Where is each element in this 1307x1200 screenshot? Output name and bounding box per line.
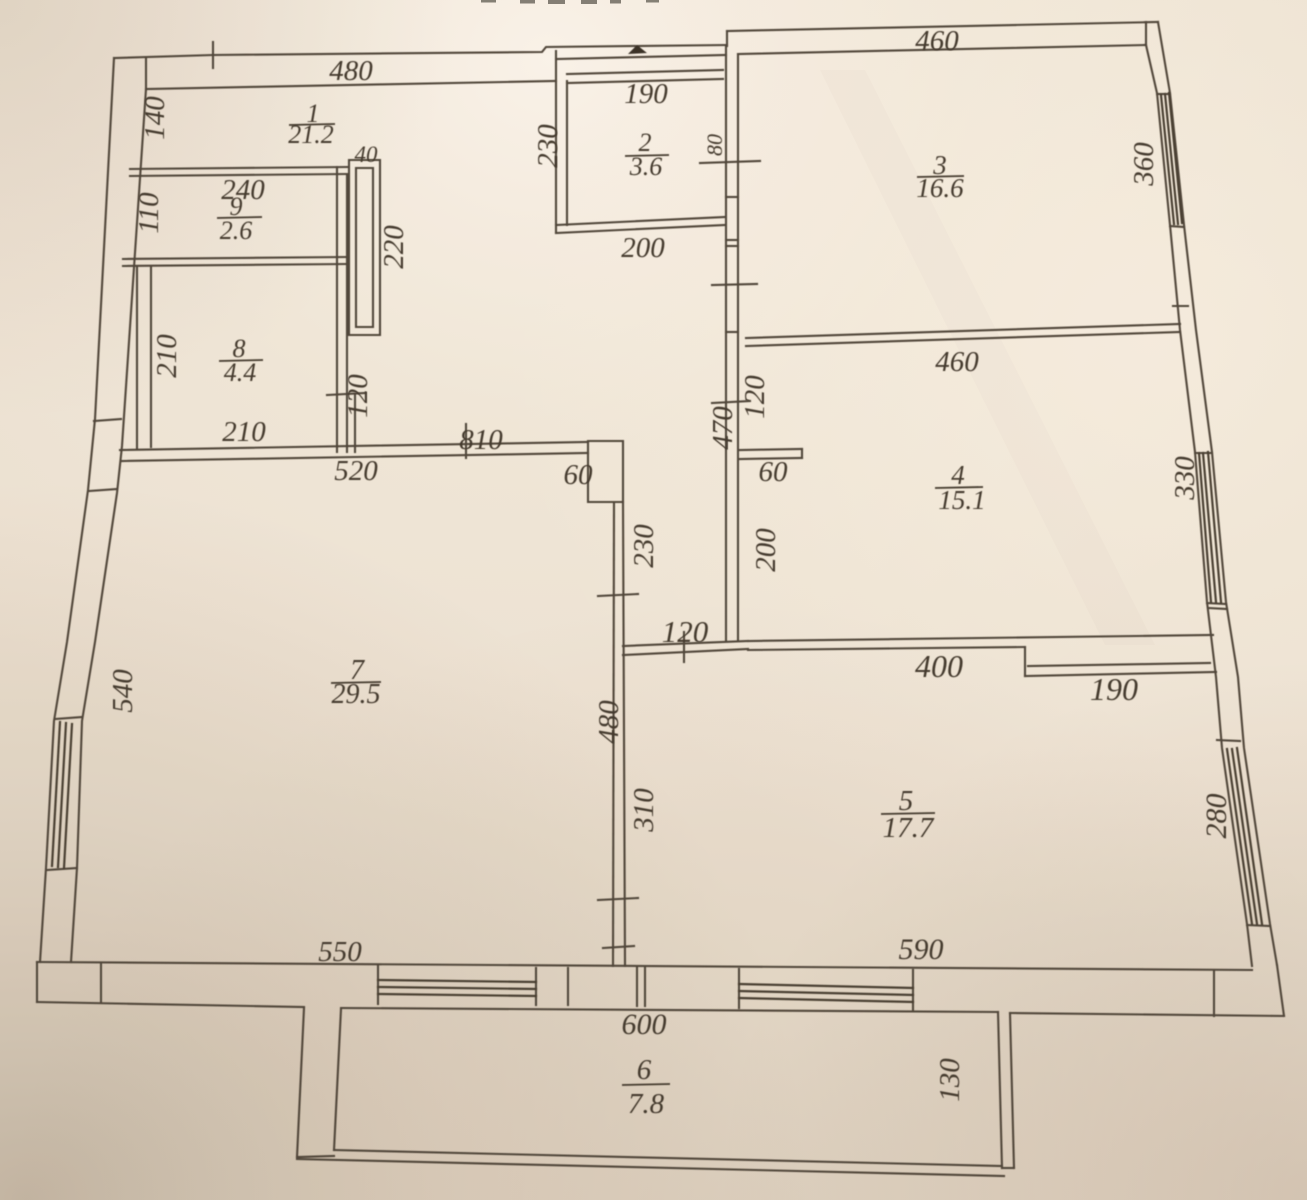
svg-text:460: 460 <box>935 346 979 378</box>
svg-text:60: 60 <box>564 459 594 491</box>
svg-text:6: 6 <box>637 1054 652 1086</box>
svg-text:200: 200 <box>750 528 782 572</box>
svg-text:480: 480 <box>593 700 625 744</box>
svg-text:15.1: 15.1 <box>938 485 985 515</box>
svg-text:80: 80 <box>702 134 727 156</box>
svg-text:280: 280 <box>1200 794 1233 839</box>
svg-text:230: 230 <box>628 524 660 568</box>
svg-text:310: 310 <box>628 788 660 833</box>
svg-text:480: 480 <box>329 55 373 87</box>
svg-text:7.8: 7.8 <box>628 1088 665 1120</box>
svg-text:2.6: 2.6 <box>220 216 253 245</box>
svg-text:200: 200 <box>621 232 665 264</box>
svg-text:21.2: 21.2 <box>288 120 334 149</box>
svg-text:210: 210 <box>151 334 183 378</box>
svg-text:120: 120 <box>342 374 374 418</box>
svg-text:210: 210 <box>222 416 266 448</box>
svg-text:520: 520 <box>334 455 378 487</box>
svg-text:330: 330 <box>1169 456 1201 501</box>
svg-text:60: 60 <box>759 456 789 488</box>
svg-text:29.5: 29.5 <box>332 679 381 710</box>
svg-text:190: 190 <box>624 78 668 110</box>
svg-text:140: 140 <box>139 96 171 140</box>
svg-text:120: 120 <box>739 375 771 419</box>
svg-text:360: 360 <box>1128 142 1160 187</box>
svg-text:4.4: 4.4 <box>224 358 257 387</box>
svg-text:590: 590 <box>899 933 944 966</box>
svg-text:110: 110 <box>133 192 165 234</box>
svg-text:120: 120 <box>662 614 709 649</box>
svg-text:600: 600 <box>622 1008 667 1041</box>
svg-text:540: 540 <box>107 669 139 713</box>
svg-text:130: 130 <box>934 1058 966 1102</box>
svg-text:220: 220 <box>378 225 410 269</box>
svg-text:460: 460 <box>915 25 959 57</box>
svg-text:550: 550 <box>318 936 362 968</box>
svg-text:810: 810 <box>459 424 503 456</box>
svg-text:470: 470 <box>707 406 739 450</box>
svg-text:230: 230 <box>532 124 564 168</box>
svg-text:3.6: 3.6 <box>629 152 663 181</box>
svg-text:190: 190 <box>1090 671 1138 707</box>
svg-text:16.6: 16.6 <box>916 173 964 203</box>
svg-text:240: 240 <box>221 174 265 206</box>
svg-text:400: 400 <box>915 648 963 684</box>
svg-text:17.7: 17.7 <box>883 812 935 844</box>
svg-text:40: 40 <box>355 142 379 167</box>
